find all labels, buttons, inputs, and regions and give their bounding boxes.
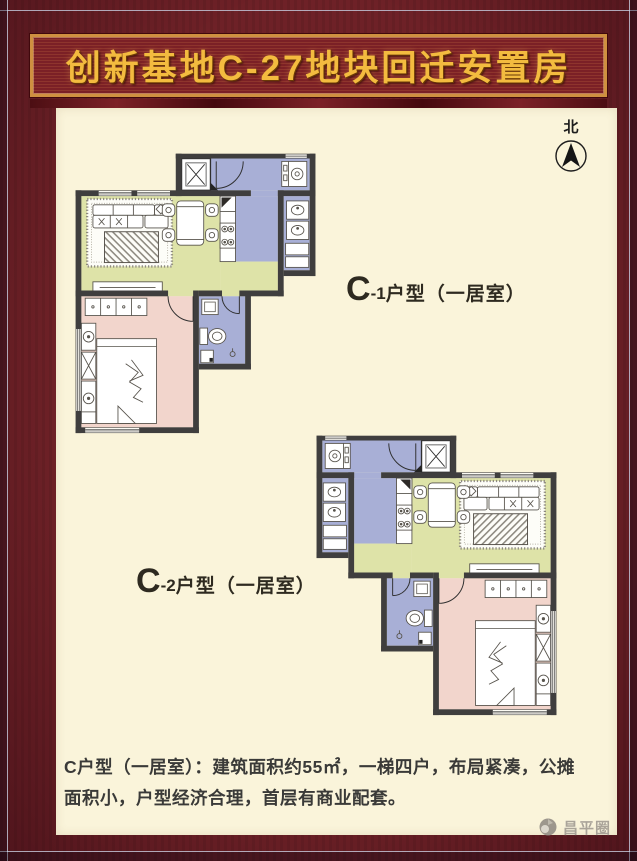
north-label: 北: [548, 120, 594, 136]
plan-c2-letter: C: [136, 562, 161, 600]
watermark: 昌平圈: [537, 816, 611, 838]
content-panel: 北: [56, 108, 617, 835]
crop-line-right: [629, 0, 630, 861]
floor-plan-c1: [74, 146, 318, 435]
crop-line-top: [0, 10, 637, 11]
banner-underline-band: [30, 99, 607, 108]
plan-c1-type: 户型（一居室）: [386, 284, 526, 305]
crop-line-left: [7, 0, 8, 861]
poster-title: 创新基地C-27地块回迁安置房: [66, 40, 572, 91]
crop-line-bottom: [0, 851, 637, 852]
watermark-text: 昌平圈: [563, 817, 611, 838]
plan-c2-type: 户型（一居室）: [176, 576, 316, 597]
north-arrow-icon: [554, 139, 588, 173]
plan-description: C户型（一居室）：建筑面积约55㎡，一梯四户，布局紧凑，公摊面积小，户型经济合理…: [64, 752, 576, 814]
poster-frame: 创新基地C-27地块回迁安置房 北: [0, 0, 637, 861]
north-compass: 北: [548, 120, 594, 173]
edge-strip-bottom: [0, 852, 637, 861]
title-banner: 创新基地C-27地块回迁安置房: [30, 34, 607, 97]
plan-label-c2: C-2户型（一居室）: [136, 562, 316, 601]
plan-c1-number: -1: [371, 284, 386, 303]
plan-c1-letter: C: [346, 270, 371, 308]
plan-c2-number: -2: [161, 576, 176, 595]
watermark-logo-icon: [537, 816, 559, 838]
plan-label-c1: C-1户型（一居室）: [346, 270, 526, 309]
edge-strip-right: [630, 0, 637, 861]
edge-strip-left: [0, 0, 7, 861]
floor-plan-c2: [314, 428, 558, 717]
